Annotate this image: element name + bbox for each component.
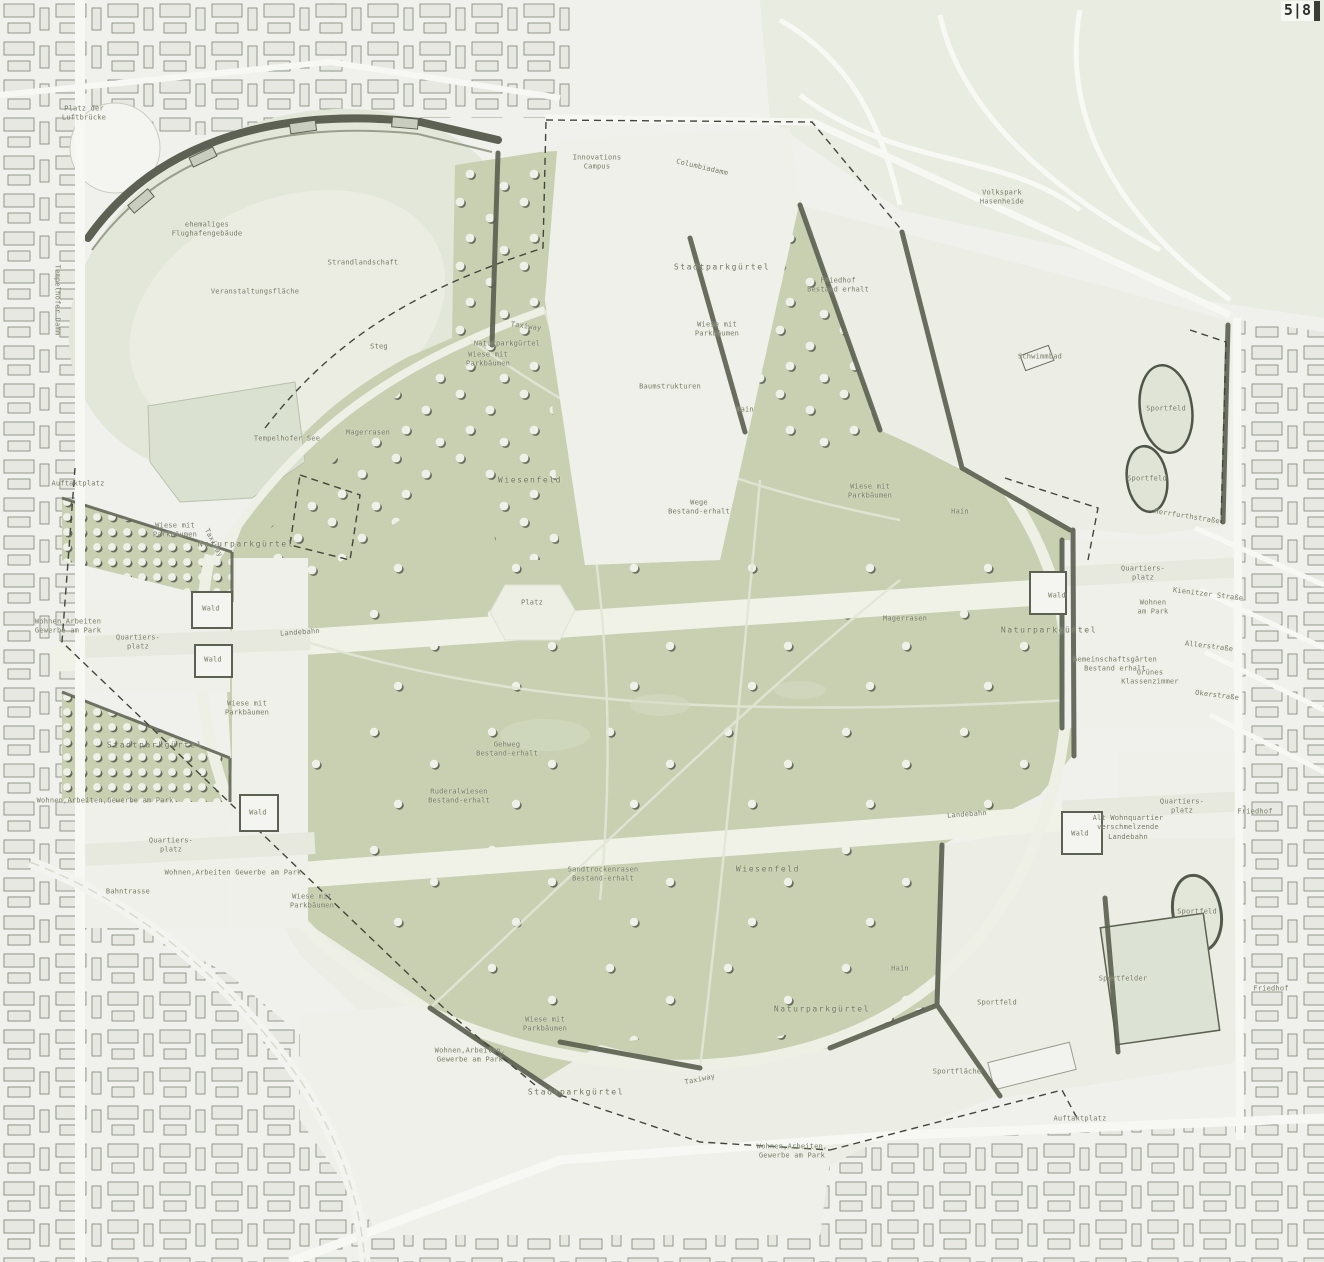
map-label: Magerrasen [883, 614, 927, 623]
map-label: Wald [249, 808, 267, 817]
map-label: Hain [736, 405, 754, 414]
map-label: Landebahn [280, 627, 320, 639]
map-label: Wiese mit Parkbäumen [153, 522, 197, 541]
map-label: Sportfläche [933, 1067, 982, 1076]
map-label: Kienitzer Straße [1172, 586, 1243, 604]
map-label: Baumstrukturen [639, 382, 701, 391]
map-label: Quartiers- platz [149, 837, 193, 856]
map-label: Wald [1071, 829, 1089, 838]
map-label: Tempelhofer Damm [52, 265, 61, 336]
map-label: Platz der Luftbrücke [62, 105, 106, 124]
map-label: Gehweg Bestand-erhalt [476, 741, 538, 760]
map-label: Sportfelder [1099, 974, 1148, 983]
map-label: Herrfurthstraße [1154, 507, 1221, 527]
map-label: Stadtparkgürtel [528, 1088, 624, 1099]
map-label: Wohnen,Arbeiten Gewerbe am Park [165, 868, 302, 877]
map-label: Naturparkgürtel [774, 1005, 870, 1016]
map-label: Hain [951, 507, 969, 516]
map-label: Wald [202, 604, 220, 613]
map-label: Sportfeld [1146, 404, 1186, 413]
map-label: Wege Bestand-erhalt [668, 499, 730, 518]
map-label: Tempelhofer See [254, 434, 320, 443]
map-label: Wiesenfeld [736, 865, 800, 876]
map-label: Grünes Klassenzimmer [1121, 669, 1178, 688]
map-label: Wald [204, 655, 222, 664]
map-labels-layer: Platz der Luftbrückeehemaliges Flughafen… [0, 0, 1324, 1262]
map-label: Alt Wohnquartier verschmelzende Landebah… [1093, 814, 1164, 842]
map-label: Innovations Campus [573, 154, 622, 173]
map-label: Sandtrockenrasen Bestand-erhalt [568, 866, 639, 885]
map-label: Auftaktplatz [52, 479, 105, 488]
map-label: Wohnen am Park [1138, 599, 1169, 618]
map-label: Schwimmbad [1018, 352, 1062, 361]
map-label: Columbiadamm [675, 157, 729, 178]
map-label: Wohnen,Arbeiten, Gewerbe am Park [435, 1047, 506, 1066]
map-label: Magerrasen [346, 428, 390, 437]
map-label: Hain [891, 964, 909, 973]
map-label: Wald [1048, 591, 1066, 600]
map-label: Sportfeld [1127, 474, 1167, 483]
map-label: Volkspark Hasenheide [980, 189, 1024, 208]
map-label: Wiese mit Parkbäumen [466, 351, 510, 370]
map-label: Friedhof [1237, 807, 1272, 816]
map-label: Platz [521, 598, 543, 607]
map-label: Stadtparkgürtel [107, 741, 203, 752]
map-label: Bahntrasse [106, 887, 150, 896]
map-label: Okerstraße [1195, 689, 1240, 704]
map-label: Wiese mit Parkbäumen [695, 321, 739, 340]
map-label: Wiese mit Parkbäumen [848, 483, 892, 502]
map-label: Veranstaltungsfläche [211, 287, 299, 296]
map-label: Auftaktplatz [1054, 1114, 1107, 1123]
map-label: Wiesenfeld [498, 476, 562, 487]
map-label: Landebahn [947, 809, 987, 821]
masterplan-map: Platz der Luftbrückeehemaliges Flughafen… [0, 0, 1324, 1262]
map-label: Steg [370, 342, 388, 351]
map-label: Wohnen Arbeiten Gewerbe am Park [35, 618, 101, 637]
map-label: Friedhof Bestand erhalt [807, 277, 869, 296]
map-label: Stadtparkgürtel [674, 263, 770, 274]
map-label: Quartiers- platz [1160, 798, 1204, 817]
map-label: Taxiway [510, 320, 542, 334]
map-label: Sportfeld [977, 998, 1017, 1007]
map-label: Taxiway [684, 1072, 716, 1088]
map-label: Quartiers- platz [1121, 565, 1165, 584]
map-label: Naturparkgürtel [474, 339, 540, 348]
map-label: Wohnen,Arbeiten, Gewerbe am Park [757, 1143, 828, 1162]
map-label: Naturparkgürtel [1001, 626, 1097, 637]
map-label: Strandlandschaft [328, 258, 399, 267]
map-label: Allerstraße [1184, 639, 1233, 654]
map-label: Sportfeld [1177, 907, 1217, 916]
map-label: Friedhof [1253, 984, 1288, 993]
map-label: Wohnen,Arbeiten,Gewerbe am Park [37, 796, 174, 805]
map-label: ehemaliges Flughafengebäude [172, 221, 243, 240]
map-label: Wiese mit Parkbäumen [225, 700, 269, 719]
map-label: Wiese mit Parkbäumen [290, 893, 334, 912]
map-label: Quartiers- platz [116, 634, 160, 653]
map-label: Naturparkgürtel [198, 540, 294, 551]
page-marker: 5|8 [1281, 1, 1320, 21]
map-label: Ruderalwiesen Bestand-erhalt [428, 788, 490, 807]
map-label: Wiese mit Parkbäumen [523, 1016, 567, 1035]
